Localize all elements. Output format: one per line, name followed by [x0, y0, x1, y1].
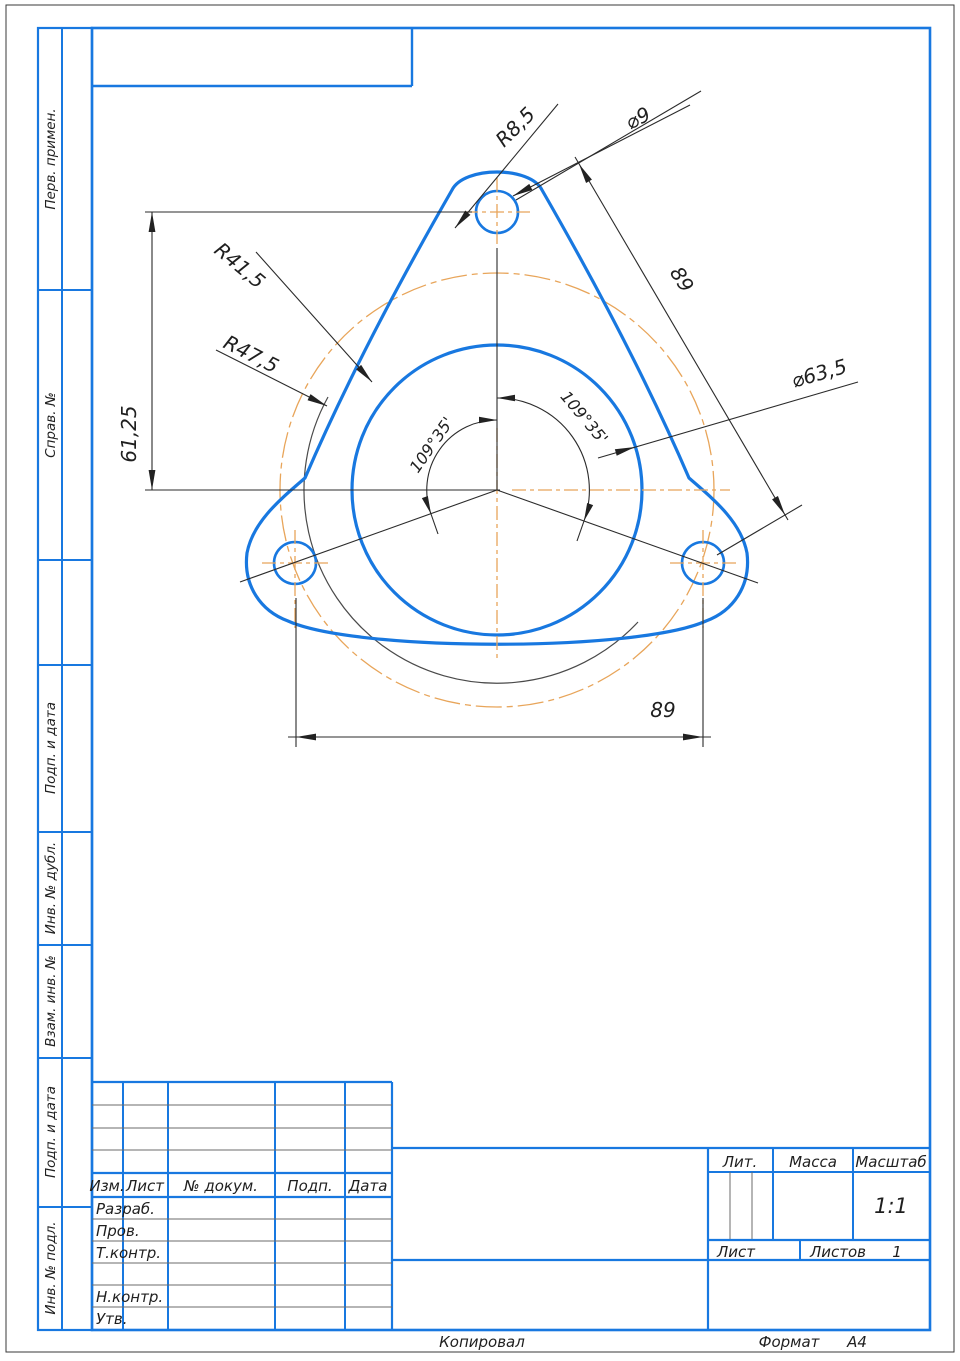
sidebar-label-inv-podl: Инв. № подл.	[43, 1221, 59, 1314]
sidebar-label-podp-data-2: Подп. и дата	[43, 1086, 59, 1178]
scale-label: Масштаб	[855, 1153, 926, 1171]
dim-spacing-horizontal: 89	[650, 698, 675, 722]
dim-angle-left: 109°35'	[406, 413, 458, 476]
lit-label: Лит.	[722, 1153, 758, 1171]
dim-spacing-diagonal: 89	[665, 262, 699, 296]
col-data: Дата	[348, 1177, 388, 1195]
col-podp: Подп.	[287, 1177, 332, 1195]
format-label: Формат	[759, 1333, 821, 1351]
sidebar-label-perv-primen: Перв. примен.	[43, 108, 59, 209]
dim-construction-radius: R47,5	[220, 330, 283, 378]
dim-flange-radius: R41,5	[210, 237, 270, 293]
drawing-frame	[92, 28, 930, 1330]
row-tkontr: Т.контр.	[96, 1244, 161, 1262]
copied-label: Копировал	[439, 1333, 525, 1351]
col-no-dokum: № докум.	[183, 1177, 258, 1195]
row-nkontr: Н.контр.	[96, 1288, 163, 1306]
gost-drawing-svg: Перв. примен. Справ. № Подп. и дата Инв.…	[0, 0, 960, 1357]
row-utv: Утв.	[96, 1310, 128, 1328]
sidebar-label-podp-data-1: Подп. и дата	[43, 702, 59, 794]
col-list: Лист	[125, 1177, 165, 1195]
sheets-value: 1	[892, 1243, 902, 1261]
dim-vertical-offset: 61,25	[117, 405, 141, 462]
sidebar: Перв. примен. Справ. № Подп. и дата Инв.…	[38, 28, 92, 1330]
drawing-sheet: Перв. примен. Справ. № Подп. и дата Инв.…	[0, 0, 960, 1357]
dimension-lines	[145, 91, 858, 747]
sheet-label: Лист	[716, 1243, 756, 1261]
dim-angle-right: 109°35'	[557, 387, 612, 448]
scale-value: 1:1	[874, 1194, 908, 1218]
sidebar-label-sprav-no: Справ. №	[43, 392, 59, 458]
mass-label: Масса	[789, 1153, 837, 1171]
sidebar-label-vzam-inv: Взам. инв. №	[43, 955, 59, 1047]
row-prov: Пров.	[96, 1222, 140, 1240]
format-value: А4	[846, 1333, 867, 1351]
dim-hole-diameter: ⌀9	[621, 102, 654, 135]
sidebar-label-inv-dubl: Инв. № дубл.	[43, 842, 59, 934]
col-izm: Изм.	[89, 1177, 124, 1195]
title-block: Изм. Лист № докум. Подп. Дата Разраб. Пр…	[89, 1082, 930, 1330]
row-razrab: Разраб.	[96, 1200, 155, 1218]
dim-fillet-radius: R8,5	[491, 102, 540, 151]
sheets-label: Листов	[809, 1243, 866, 1261]
